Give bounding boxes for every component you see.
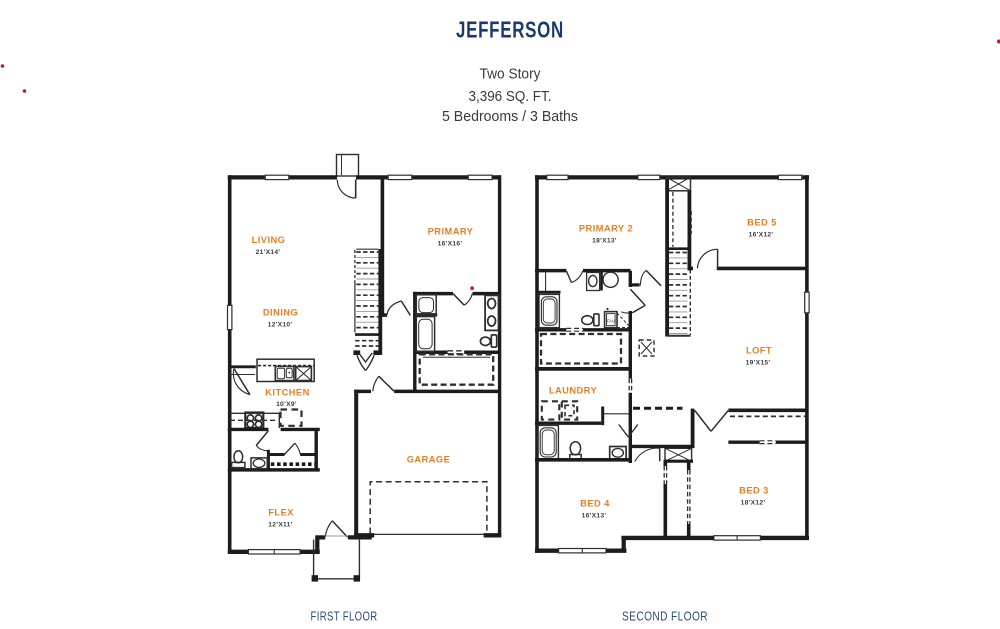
svg-text:BED 4: BED 4 bbox=[580, 499, 610, 509]
svg-text:PRIMARY 2: PRIMARY 2 bbox=[579, 224, 633, 234]
svg-text:12’X10’: 12’X10’ bbox=[268, 322, 293, 329]
svg-text:FIRST FLOOR: FIRST FLOOR bbox=[311, 609, 378, 624]
svg-text:LOFT: LOFT bbox=[746, 346, 772, 356]
svg-text:GARAGE: GARAGE bbox=[407, 455, 451, 465]
svg-text:SECOND FLOOR: SECOND FLOOR bbox=[622, 609, 708, 624]
svg-text:LIVING: LIVING bbox=[252, 235, 286, 245]
svg-text:JEFFERSON: JEFFERSON bbox=[456, 17, 564, 43]
svg-text:18’X13’: 18’X13’ bbox=[592, 238, 617, 245]
svg-text:16’X16’: 16’X16’ bbox=[438, 241, 463, 248]
svg-text:18’X12’: 18’X12’ bbox=[741, 500, 766, 507]
svg-text:LAUNDRY: LAUNDRY bbox=[549, 386, 598, 396]
svg-text:19’X15’: 19’X15’ bbox=[746, 360, 771, 367]
svg-text:Two Story: Two Story bbox=[480, 67, 542, 83]
svg-text:DINING: DINING bbox=[263, 308, 298, 318]
svg-text:16’X12’: 16’X12’ bbox=[749, 232, 774, 239]
svg-text:10’X9’: 10’X9’ bbox=[276, 401, 297, 408]
svg-text:PRIMARY: PRIMARY bbox=[428, 227, 474, 237]
svg-text:16’X13’: 16’X13’ bbox=[582, 513, 607, 520]
svg-text:FLEX: FLEX bbox=[268, 508, 294, 518]
svg-text:5 Bedrooms / 3 Baths: 5 Bedrooms / 3 Baths bbox=[442, 109, 578, 125]
svg-text:3,396 SQ. FT.: 3,396 SQ. FT. bbox=[469, 89, 552, 105]
svg-text:12’X11’: 12’X11’ bbox=[268, 522, 292, 529]
svg-text:KITCHEN: KITCHEN bbox=[265, 388, 309, 398]
svg-text:FAU: FAU bbox=[607, 319, 615, 324]
svg-text:21’X14’: 21’X14’ bbox=[256, 249, 281, 256]
svg-text:BED 5: BED 5 bbox=[747, 218, 777, 228]
svg-text:BED 3: BED 3 bbox=[739, 486, 769, 496]
